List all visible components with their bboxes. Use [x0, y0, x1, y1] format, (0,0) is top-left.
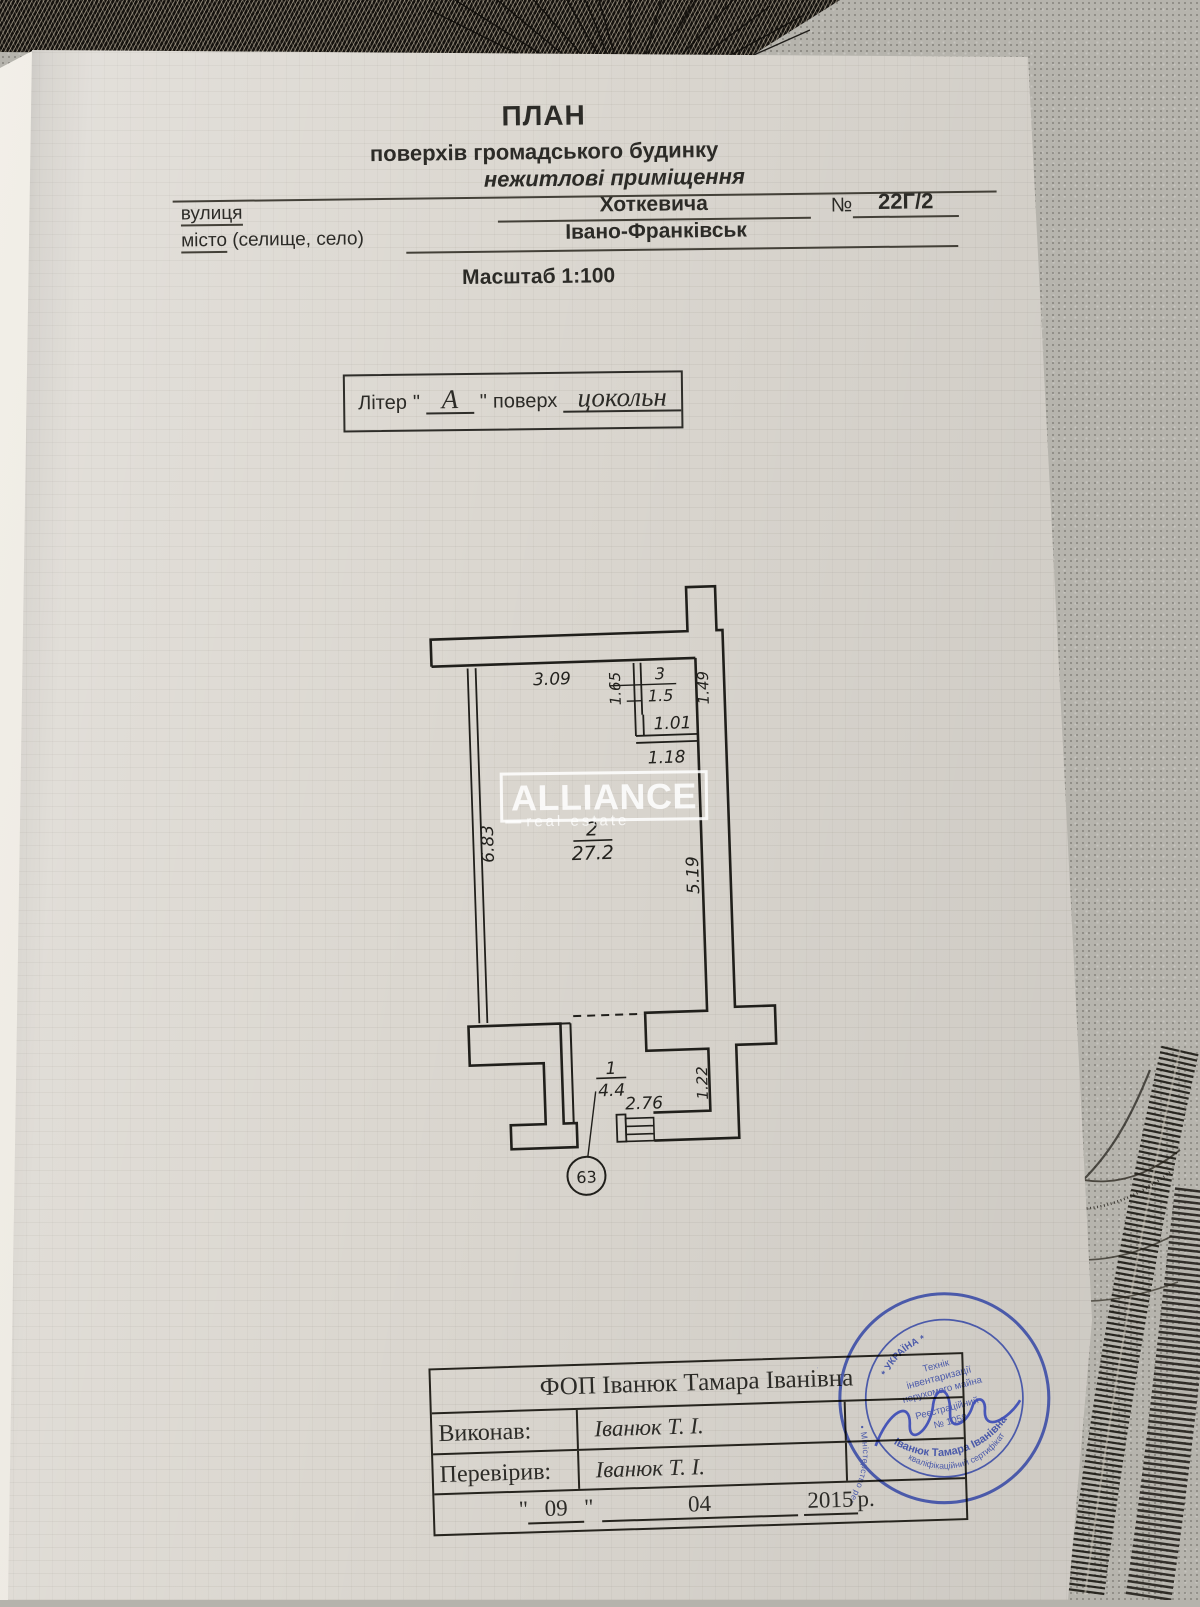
room3-bottom-wall: [636, 734, 698, 743]
street-label: вулиця: [181, 203, 243, 226]
company-name: ФОП Іванюк Тамара Іванівна: [539, 1357, 854, 1409]
street-label-text: вулиця: [181, 203, 243, 227]
watermark-box: ALLIANCE real estate: [500, 770, 709, 823]
liter-box: Літер " А " поверх цокольн: [343, 370, 684, 432]
date-quote-close: ": [584, 1494, 594, 1520]
row-label: Перевірив:: [433, 1451, 580, 1493]
city-label-rest: (селище, село): [227, 228, 364, 251]
dim-top: 3.09: [533, 669, 572, 690]
quote-close: ": [480, 390, 487, 413]
dash-decoration: [505, 820, 521, 823]
dim-below-room3: 1.18: [647, 747, 686, 768]
door-hatch: [626, 1118, 655, 1142]
row-value: Іванюк Т. І.: [579, 1443, 848, 1489]
street-value: Хоткевича: [498, 191, 810, 219]
floor-value: цокольн: [563, 383, 681, 412]
room1-number: 1: [605, 1059, 616, 1079]
number-label: №: [831, 194, 853, 217]
dim-left: 6.83: [478, 825, 499, 864]
date-day: 09: [528, 1495, 585, 1525]
floor-label: поверх: [493, 389, 558, 413]
watermark-tagline: real estate: [505, 812, 629, 831]
room2-area: 27.2: [571, 842, 614, 865]
row-value: Іванюк Т. І.: [578, 1402, 847, 1449]
dim-right: 5.19: [683, 856, 704, 895]
watermark-tagline-text: real estate: [526, 812, 629, 830]
city-rule: [406, 245, 958, 254]
city-value: Івано-Франківськ: [406, 217, 906, 247]
city-label: місто (селище, село): [181, 228, 364, 252]
unit-marker: 63: [576, 1167, 597, 1187]
opening-dashed: [573, 1014, 643, 1016]
liter-label: Літер: [358, 391, 407, 415]
page-title: ПЛАН: [343, 98, 743, 135]
dim-room3-width: 1.01: [653, 713, 692, 734]
number-value: 22Г/2: [855, 188, 957, 215]
room3-number: 3: [654, 664, 665, 683]
page-subtitle-2: нежитлові приміщення: [394, 162, 834, 193]
room3-area: 1.5: [648, 686, 674, 706]
document-paper: ПЛАН поверхів громадського будинку нежит…: [0, 0, 1200, 1600]
liter-value: А: [426, 386, 474, 415]
room3-partition: [634, 663, 644, 736]
room1-area: 4.4: [598, 1080, 626, 1101]
dim-partition: 1.65: [606, 672, 625, 706]
dim-notch: 1.22: [693, 1066, 712, 1100]
date-month: 04: [601, 1488, 798, 1522]
floor-plan: 3.09 1.65 3 1.5 1.49 1.01 1.18 6.83 2 27…: [370, 548, 812, 1242]
scale-label: Масштаб 1:100: [338, 263, 738, 292]
quote-open: ": [413, 391, 420, 414]
city-label-word: місто: [181, 230, 227, 254]
dim-room3-right: 1.49: [694, 671, 713, 705]
feather-fan: [430, 0, 810, 58]
document-content: ПЛАН поверхів громадського будинку нежит…: [0, 0, 1200, 1607]
dim-door: 2.76: [625, 1093, 664, 1114]
wall-bottom-left: [468, 1023, 577, 1150]
row-label: Виконав:: [432, 1410, 579, 1453]
marker-leader: [586, 1091, 598, 1156]
fraction-lines: [573, 840, 626, 1079]
